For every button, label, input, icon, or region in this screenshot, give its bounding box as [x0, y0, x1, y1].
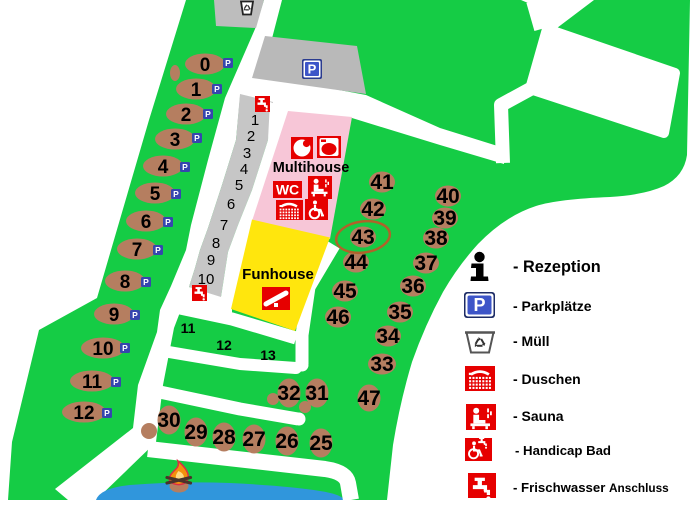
svg-text:1: 1: [251, 112, 259, 129]
svg-text:43: 43: [351, 226, 374, 249]
svg-text:- Müll: - Müll: [513, 333, 550, 349]
svg-text:41: 41: [370, 171, 394, 194]
svg-text:5: 5: [150, 184, 161, 205]
svg-text:32: 32: [277, 382, 300, 405]
svg-text:7: 7: [132, 240, 143, 261]
svg-text:47: 47: [357, 387, 380, 410]
svg-text:6: 6: [227, 196, 235, 213]
svg-text:- Parkplätze: - Parkplätze: [513, 298, 592, 314]
svg-text:P: P: [214, 84, 220, 94]
svg-text:3: 3: [243, 145, 251, 162]
svg-text:P: P: [132, 310, 138, 320]
svg-text:10: 10: [92, 339, 113, 360]
svg-text:4: 4: [240, 161, 248, 178]
svg-text:27: 27: [242, 428, 265, 451]
svg-text:P: P: [225, 58, 231, 68]
svg-text:46: 46: [326, 306, 349, 329]
svg-text:26: 26: [275, 430, 298, 453]
svg-text:P: P: [143, 277, 149, 287]
svg-text:35: 35: [388, 301, 412, 324]
svg-text:0: 0: [200, 55, 211, 76]
svg-text:36: 36: [401, 275, 424, 298]
svg-text:P: P: [173, 189, 179, 199]
svg-text:3: 3: [170, 130, 181, 151]
svg-text:30: 30: [157, 409, 180, 432]
svg-text:P: P: [113, 377, 119, 387]
svg-text:- Duschen: - Duschen: [513, 371, 581, 387]
svg-text:25: 25: [309, 432, 333, 455]
svg-text:8: 8: [212, 235, 220, 252]
svg-text:Multihouse: Multihouse: [273, 160, 350, 176]
svg-text:2: 2: [181, 105, 192, 126]
svg-text:5: 5: [235, 177, 243, 194]
svg-text:34: 34: [376, 325, 400, 348]
svg-text:P: P: [122, 343, 128, 353]
svg-text:7: 7: [220, 217, 228, 234]
svg-text:6: 6: [141, 212, 152, 233]
svg-text:P: P: [308, 62, 317, 77]
svg-text:12: 12: [73, 403, 94, 424]
svg-text:1: 1: [191, 80, 202, 101]
svg-text:8: 8: [120, 272, 131, 293]
svg-text:9: 9: [207, 252, 215, 269]
svg-text:- Rezeption: - Rezeption: [513, 258, 601, 276]
svg-text:29: 29: [184, 421, 207, 444]
svg-text:33: 33: [370, 353, 393, 376]
svg-text:9: 9: [109, 305, 120, 326]
svg-text:P: P: [205, 109, 211, 119]
svg-text:P: P: [194, 133, 200, 143]
svg-text:31: 31: [305, 382, 329, 405]
svg-text:38: 38: [424, 227, 448, 250]
svg-text:4: 4: [158, 157, 169, 178]
svg-text:P: P: [155, 245, 161, 255]
svg-text:P: P: [473, 295, 485, 315]
svg-text:- Sauna: - Sauna: [513, 408, 564, 424]
svg-text:28: 28: [212, 426, 236, 449]
svg-text:44: 44: [344, 251, 368, 274]
svg-text:13: 13: [260, 347, 276, 363]
svg-text:37: 37: [414, 252, 437, 275]
svg-text:45: 45: [333, 280, 357, 303]
svg-text:WC: WC: [276, 182, 299, 198]
svg-text:P: P: [182, 162, 188, 172]
svg-text:Funhouse: Funhouse: [242, 266, 314, 283]
svg-text:P: P: [104, 408, 110, 418]
svg-text:P: P: [165, 217, 171, 227]
svg-text:- Handicap Bad: - Handicap Bad: [515, 443, 611, 458]
svg-text:12: 12: [216, 337, 232, 353]
svg-text:11: 11: [181, 320, 196, 336]
svg-text:40: 40: [436, 185, 459, 208]
svg-text:42: 42: [361, 198, 384, 221]
svg-text:11: 11: [82, 372, 103, 393]
svg-text:2: 2: [247, 128, 255, 145]
svg-text:- Frischwasser Anschluss: - Frischwasser Anschluss: [513, 480, 669, 495]
